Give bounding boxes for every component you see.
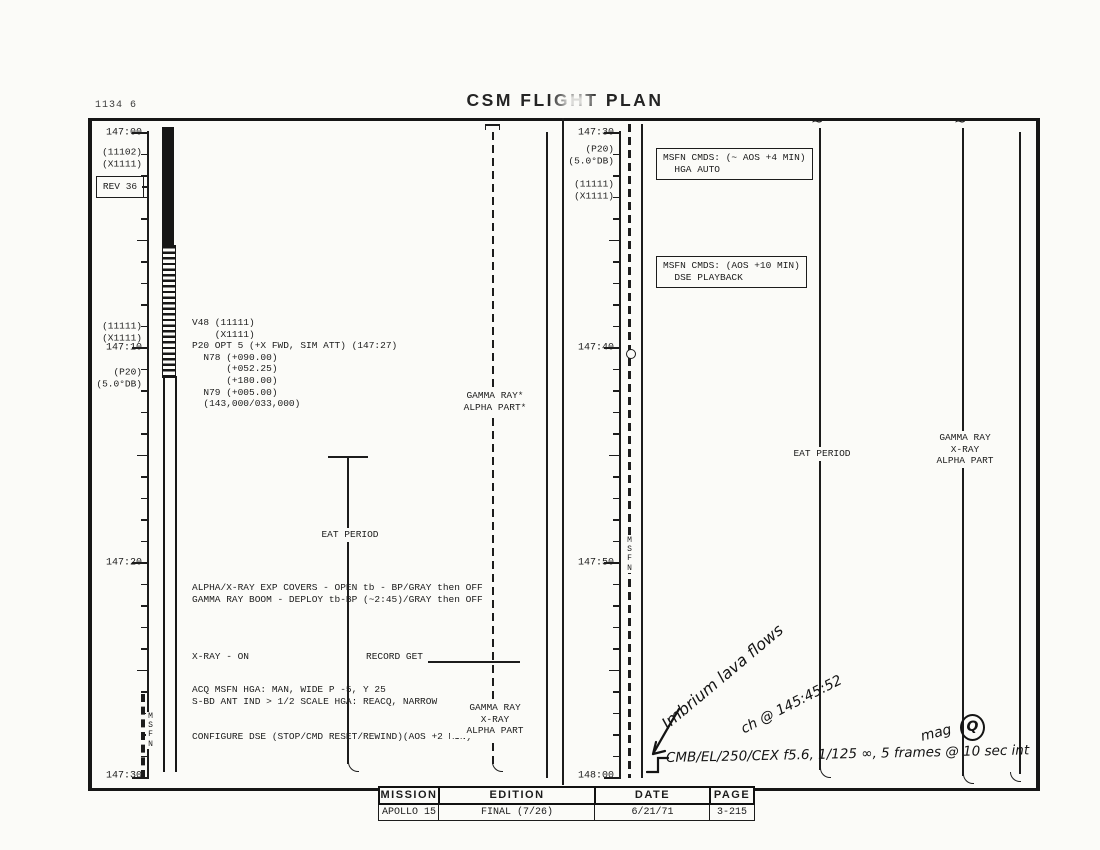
ruler-tick: [141, 197, 147, 198]
ruler-tick: [141, 584, 147, 585]
eat-period-label: EAT PERIOD: [777, 447, 867, 461]
ruler-tick: [141, 175, 147, 176]
ruler-tick: [613, 197, 619, 198]
msfn-coverage-label: MSFN: [625, 536, 634, 573]
ruler-tick: [613, 691, 619, 692]
ruler-tick: [613, 154, 619, 155]
line-continuation-squiggle: ~: [954, 116, 967, 126]
ruler-tick: [132, 132, 147, 133]
gamma-xray-alpha-label: GAMMA RAY X-RAY ALPHA PART: [919, 431, 1011, 468]
ruler-tick: [613, 433, 619, 434]
margin-note: (5.0°DB): [560, 156, 614, 167]
ruler-tick: [609, 670, 619, 671]
margin-note: (5.0°DB): [92, 379, 142, 390]
msfn-coverage-dashes: [141, 694, 145, 778]
ruler-tick: [609, 455, 619, 456]
record-get-label: RECORD GET: [366, 651, 423, 663]
p20-attitude-block: V48 (11111) (X1111) P20 OPT 5 (+X FWD, S…: [192, 317, 397, 410]
ruler-tick: [141, 283, 147, 284]
margin-note: (P20): [560, 144, 614, 155]
ruler-tick: [613, 498, 619, 499]
footer-header: MISSION: [378, 786, 440, 805]
eat-period-label: EAT PERIOD: [305, 528, 395, 542]
ruler-tick: [141, 627, 147, 628]
ruler-tick: [137, 240, 147, 241]
footer-value: FINAL (7/26): [438, 805, 596, 821]
right-ruler-line: [619, 131, 621, 779]
ruler-tick: [141, 691, 147, 692]
experiment-timeline-dashed: [492, 132, 495, 764]
ruler-tick: [141, 261, 147, 262]
ruler-tick: [613, 584, 619, 585]
margin-note: (X1111): [560, 191, 614, 202]
coverage-bar-hollow: [163, 376, 177, 772]
ruler-tick: [609, 240, 619, 241]
ruler-tick: [141, 605, 147, 606]
ruler-tick: [613, 304, 619, 305]
ruler-tick: [137, 670, 147, 671]
msfn-coverage-label: MSFN: [146, 712, 155, 749]
ruler-tick: [604, 777, 619, 778]
ruler-tick: [613, 648, 619, 649]
ruler-tick: [141, 304, 147, 305]
flight-plan-page: 1134 6 CSM FLIGHT PLAN 147:00 147:10 147…: [0, 0, 1100, 850]
left-ruler-line: [147, 131, 149, 779]
ruler-tick: [613, 627, 619, 628]
msfn-cmds-box-2: MSFN CMDS: (AOS +10 MIN) DSE PLAYBACK: [656, 256, 807, 288]
time-label: 148:00: [568, 771, 614, 782]
footer-header: DATE: [594, 786, 711, 805]
footer-value: 6/21/71: [594, 805, 711, 821]
ruler-tick: [604, 347, 619, 348]
ruler-tick: [141, 498, 147, 499]
margin-note: (11102): [92, 147, 142, 158]
acq-msfn-block: ACQ MSFN HGA: MAN, WIDE P -5, Y 25 S-BD …: [192, 684, 437, 707]
margin-note: (P20): [92, 367, 142, 378]
line-continuation-squiggle: ~: [811, 116, 824, 126]
coverage-bar-hatched: [162, 245, 176, 378]
ruler-tick: [604, 562, 619, 563]
ruler-tick: [141, 648, 147, 649]
ruler-tick: [141, 519, 147, 520]
xray-on-label: X-RAY - ON: [192, 651, 249, 663]
gamma-xray-alpha-label: GAMMA RAY X-RAY ALPHA PART: [450, 701, 540, 738]
margin-note: (X1111): [92, 333, 142, 344]
margin-note: (X1111): [92, 159, 142, 170]
msfn-cmds-box-1: MSFN CMDS: (~ AOS +4 MIN) HGA AUTO: [656, 148, 813, 180]
footer-col-mission: MISSION APOLLO 15: [378, 786, 440, 821]
ruler-tick: [141, 326, 147, 327]
ruler-tick: [613, 369, 619, 370]
footer-header: EDITION: [438, 786, 596, 805]
footer-col-edition: EDITION FINAL (7/26): [438, 786, 596, 821]
ruler-tick: [141, 154, 147, 155]
ruler-tick: [604, 132, 619, 133]
ruler-tick: [613, 519, 619, 520]
right-panel-edge-line: [1019, 132, 1021, 774]
msfn-coverage-dashed-line: [628, 124, 631, 778]
footer-value: 3-215: [709, 805, 755, 821]
eat-period-line: [347, 456, 349, 764]
rev-badge: REV 36: [96, 176, 144, 198]
scan-smudge: [552, 88, 598, 114]
footer-header: PAGE: [709, 786, 755, 805]
ruler-tick: [613, 390, 619, 391]
ruler-tick: [141, 390, 147, 391]
ruler-tick: [613, 412, 619, 413]
dashed-line-start-serif: [499, 124, 500, 130]
corner-note: 1134 6: [95, 100, 137, 111]
ruler-tick: [141, 433, 147, 434]
ruler-tick: [141, 541, 147, 542]
footer-table: MISSION APOLLO 15 EDITION FINAL (7/26) D…: [378, 786, 755, 821]
margin-note: (11111): [560, 179, 614, 190]
coverage-bar-solid: [162, 127, 174, 245]
left-panel-edge-line: [546, 132, 548, 778]
configure-dse-label: CONFIGURE DSE (STOP/CMD RESET/REWIND)(AO…: [192, 731, 471, 743]
ruler-tick: [141, 412, 147, 413]
time-label: 147:30: [96, 771, 142, 782]
ruler-tick: [613, 713, 619, 714]
ruler-tick: [613, 326, 619, 327]
ruler-tick: [141, 369, 147, 370]
dashed-line-start-serif: [485, 124, 486, 130]
rev-connector: [142, 186, 148, 188]
footer-col-page: PAGE 3-215: [709, 786, 755, 821]
gamma-alpha-label: GAMMA RAY* ALPHA PART*: [447, 389, 543, 414]
ruler-tick: [132, 347, 147, 348]
ruler-tick: [613, 756, 619, 757]
ruler-tick: [141, 218, 147, 219]
ruler-tick: [613, 476, 619, 477]
ruler-tick: [613, 734, 619, 735]
footer-col-date: DATE 6/21/71: [594, 786, 711, 821]
ruler-tick: [141, 476, 147, 477]
ruler-tick: [137, 455, 147, 456]
ruler-tick: [132, 562, 147, 563]
ruler-tick: [613, 261, 619, 262]
footer-value: APOLLO 15: [378, 805, 440, 821]
ruler-tick: [613, 605, 619, 606]
margin-note: (11111): [92, 321, 142, 332]
ruler-tick: [613, 541, 619, 542]
exp-covers-block: ALPHA/X-RAY EXP COVERS - OPEN tb - BP/GR…: [192, 582, 483, 605]
event-circle-marker: [626, 349, 636, 359]
handwritten-mag-letter: Q: [960, 714, 985, 741]
right-panel-activity-line: [641, 124, 643, 778]
ruler-tick: [613, 283, 619, 284]
ruler-tick: [613, 218, 619, 219]
record-get-line: [428, 661, 520, 663]
panel-divider: [562, 118, 564, 785]
ruler-tick: [613, 175, 619, 176]
